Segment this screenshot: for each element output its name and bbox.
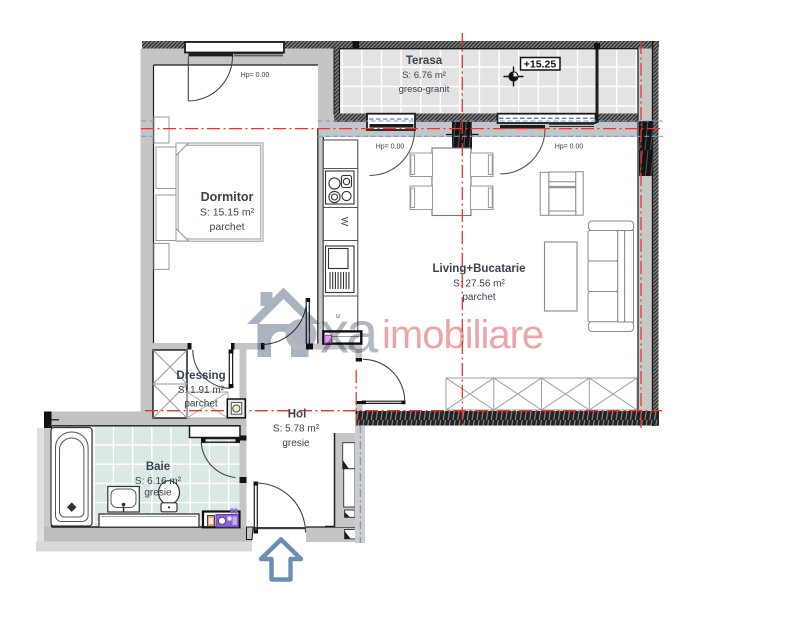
svg-text:S: 6.76 m²: S: 6.76 m² (402, 70, 446, 81)
svg-text:parchet: parchet (462, 292, 496, 303)
svg-text:W: W (339, 217, 350, 226)
svg-text:Terasa: Terasa (406, 55, 443, 67)
svg-text:Dressing: Dressing (176, 370, 225, 382)
svg-text:S: 5.78 m²: S: 5.78 m² (273, 424, 320, 435)
svg-text:S: 6.16 m²: S: 6.16 m² (135, 476, 182, 487)
svg-text:Dormitor: Dormitor (201, 190, 254, 204)
svg-text:Living+Bucatarie: Living+Bucatarie (433, 263, 526, 275)
svg-text:parchet: parchet (209, 221, 244, 233)
svg-text:gresie: gresie (144, 488, 172, 499)
svg-text:Hp= 0.00: Hp= 0.00 (555, 144, 584, 151)
svg-text:gresie: gresie (282, 438, 310, 449)
svg-text:parchet: parchet (184, 399, 218, 410)
svg-text:+15.25: +15.25 (524, 59, 557, 71)
svg-text:Baie: Baie (146, 461, 170, 473)
svg-text:S: 15.15 m²: S: 15.15 m² (200, 207, 255, 219)
svg-text:greso-granit: greso-granit (399, 84, 450, 95)
svg-text:S: 1.91 m²: S: 1.91 m² (178, 385, 225, 396)
svg-text:S: 27.56 m²: S: 27.56 m² (453, 279, 505, 290)
svg-text:xa: xa (320, 301, 379, 366)
svg-text:Hp= 0.00: Hp= 0.00 (376, 144, 405, 151)
svg-text:Hol: Hol (288, 409, 307, 421)
svg-text:Hp= 0.00: Hp= 0.00 (241, 72, 270, 79)
